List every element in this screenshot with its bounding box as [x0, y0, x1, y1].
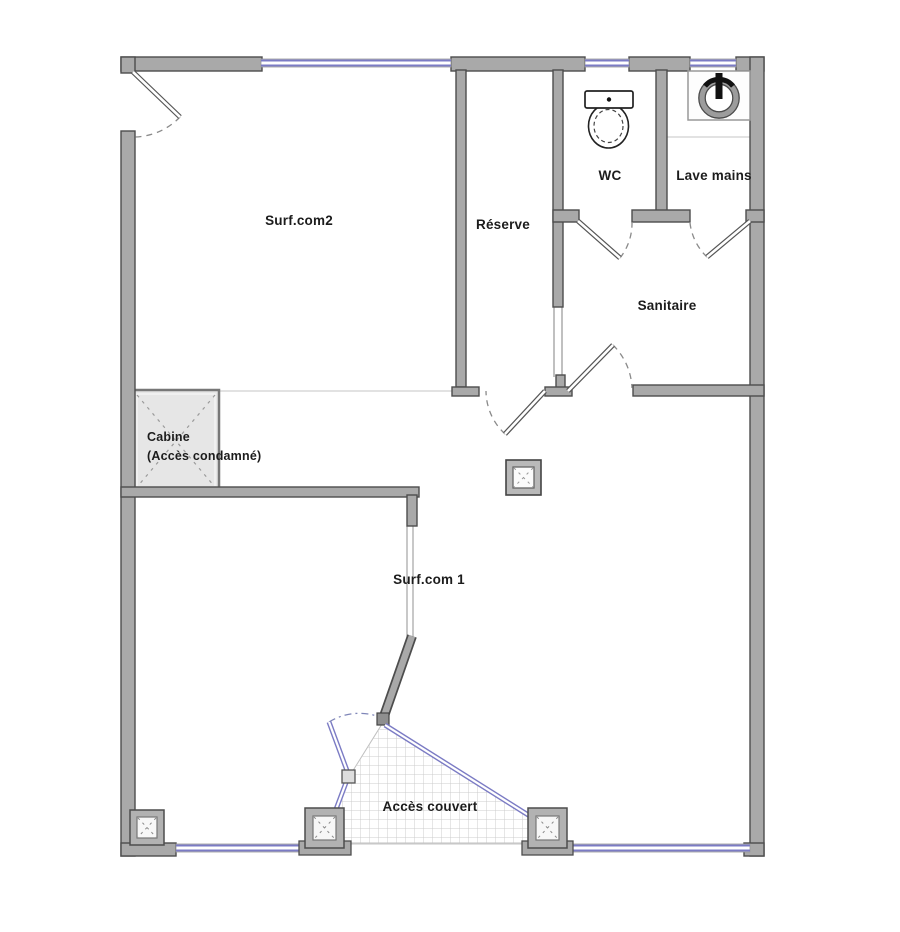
- room-label-cabine-note: (Accès condamné): [147, 449, 261, 463]
- door-arc-entrance-left: [135, 117, 180, 137]
- column-post-icon: [506, 460, 541, 495]
- window-bottom-2: [568, 844, 750, 852]
- door-arcs: [135, 117, 707, 722]
- acces-couvert-hatch: [337, 724, 533, 843]
- door-arc-sanitaire: [613, 345, 632, 388]
- room-label-cabine: Cabine: [147, 430, 190, 444]
- room-label-surfcom2: Surf.com2: [265, 213, 333, 228]
- window-top-1: [261, 59, 451, 67]
- door-arc-wc: [620, 222, 632, 258]
- column-post-icon: [305, 808, 344, 848]
- window-bottom-1: [176, 844, 306, 852]
- column-post-icon: [528, 808, 567, 848]
- door-arc-entry-vestibule: [329, 713, 377, 722]
- door-arc-reserve: [486, 391, 505, 434]
- window-top-2: [585, 59, 629, 67]
- room-label-acces-couvert: Accès couvert: [383, 799, 478, 814]
- room-label-surfcom1: Surf.com 1: [393, 572, 465, 587]
- entry-door-hinge: [342, 770, 355, 783]
- floor-plan-drawing: [0, 0, 900, 932]
- floor-plan: Surf.com2 Réserve WC Lave mains Sanitair…: [0, 0, 900, 932]
- angled-wall: [377, 636, 412, 725]
- room-label-lave-mains: Lave mains: [676, 168, 752, 183]
- sink-icon: [688, 71, 750, 120]
- room-label-wc: WC: [599, 168, 622, 183]
- toilet-icon: [585, 91, 633, 148]
- door-arc-lave-mains: [690, 223, 707, 257]
- room-label-reserve: Réserve: [476, 217, 530, 232]
- room-label-sanitaire: Sanitaire: [638, 298, 697, 313]
- column-post-icon: [130, 810, 164, 845]
- window-top-3: [690, 59, 736, 67]
- cased-opening-reserve-sanitaire: [554, 307, 562, 377]
